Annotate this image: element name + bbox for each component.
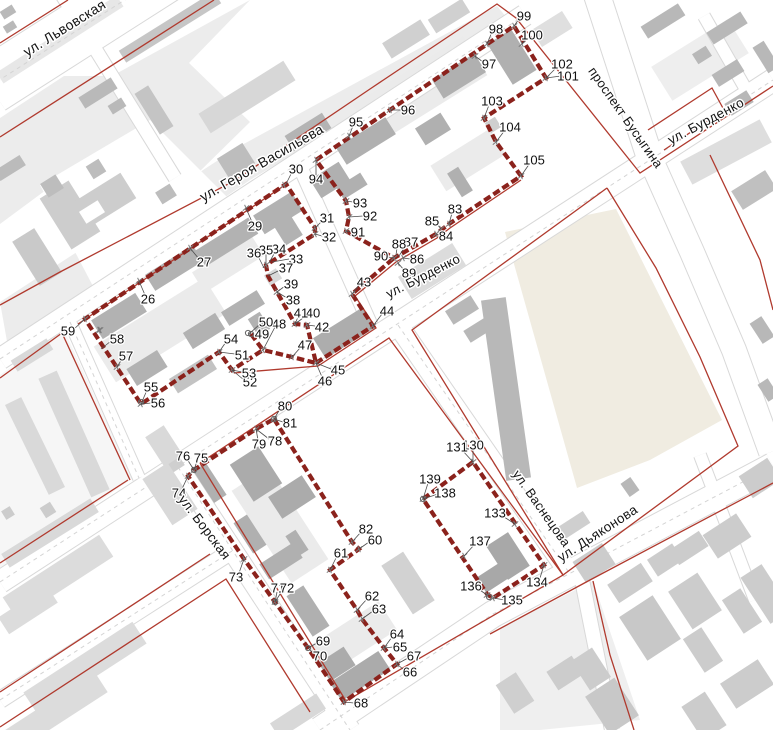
svg-text:75: 75 — [194, 451, 208, 466]
svg-text:82: 82 — [359, 522, 373, 537]
svg-text:56: 56 — [151, 396, 165, 411]
svg-text:91: 91 — [351, 225, 365, 240]
svg-text:50: 50 — [259, 315, 273, 330]
svg-text:103: 103 — [481, 94, 503, 109]
svg-text:68: 68 — [354, 696, 368, 711]
svg-text:97: 97 — [482, 57, 496, 72]
svg-text:43: 43 — [357, 275, 371, 290]
svg-text:48: 48 — [272, 317, 286, 332]
svg-text:105: 105 — [523, 153, 545, 168]
svg-text:94: 94 — [309, 172, 323, 187]
svg-text:61: 61 — [334, 546, 348, 561]
svg-text:58: 58 — [110, 332, 124, 347]
svg-text:45: 45 — [331, 363, 345, 378]
svg-text:131: 131 — [446, 440, 468, 455]
svg-text:88: 88 — [392, 237, 406, 252]
svg-text:98: 98 — [489, 22, 503, 37]
svg-text:99: 99 — [517, 9, 531, 24]
svg-text:80: 80 — [278, 399, 292, 414]
svg-text:84: 84 — [439, 229, 453, 244]
svg-text:93: 93 — [353, 196, 367, 211]
svg-text:65: 65 — [393, 640, 407, 655]
svg-text:95: 95 — [349, 115, 363, 130]
svg-text:30: 30 — [289, 162, 303, 177]
svg-text:59: 59 — [61, 324, 75, 339]
svg-text:78: 78 — [268, 434, 282, 449]
svg-text:133: 133 — [484, 506, 506, 521]
svg-text:104: 104 — [499, 120, 521, 135]
svg-text:27: 27 — [197, 255, 211, 270]
svg-text:81: 81 — [283, 416, 297, 431]
svg-text:54: 54 — [224, 332, 238, 347]
svg-text:42: 42 — [315, 320, 329, 335]
svg-text:32: 32 — [322, 230, 336, 245]
svg-text:139: 139 — [419, 472, 441, 487]
svg-text:47: 47 — [298, 338, 312, 353]
svg-text:66: 66 — [403, 665, 417, 680]
svg-text:138: 138 — [434, 486, 456, 501]
svg-text:92: 92 — [363, 209, 377, 224]
svg-text:72: 72 — [280, 581, 294, 596]
svg-text:31: 31 — [320, 211, 334, 226]
svg-text:137: 137 — [469, 534, 491, 549]
svg-text:37: 37 — [279, 261, 293, 276]
svg-text:55: 55 — [144, 380, 158, 395]
svg-text:136: 136 — [460, 579, 482, 594]
svg-text:39: 39 — [284, 277, 298, 292]
svg-text:51: 51 — [235, 348, 249, 363]
svg-text:67: 67 — [407, 649, 421, 664]
svg-text:57: 57 — [119, 349, 133, 364]
svg-text:79: 79 — [252, 437, 266, 452]
svg-text:53: 53 — [242, 366, 256, 381]
svg-text:36: 36 — [247, 246, 261, 261]
svg-text:102: 102 — [551, 57, 573, 72]
svg-text:96: 96 — [401, 103, 415, 118]
svg-text:73: 73 — [229, 570, 243, 585]
svg-text:26: 26 — [141, 292, 155, 307]
svg-text:86: 86 — [410, 252, 424, 267]
svg-text:90: 90 — [374, 249, 388, 264]
svg-text:44: 44 — [380, 304, 394, 319]
svg-text:135: 135 — [501, 593, 523, 608]
svg-text:63: 63 — [372, 602, 386, 617]
svg-text:34: 34 — [272, 242, 286, 257]
svg-text:76: 76 — [176, 449, 190, 464]
svg-text:83: 83 — [448, 202, 462, 217]
svg-text:69: 69 — [316, 634, 330, 649]
svg-text:70: 70 — [313, 649, 327, 664]
svg-text:41: 41 — [294, 306, 308, 321]
svg-text:100: 100 — [521, 28, 543, 43]
svg-text:29: 29 — [248, 219, 262, 234]
svg-text:46: 46 — [318, 374, 332, 389]
svg-text:134: 134 — [526, 575, 548, 590]
svg-text:85: 85 — [425, 214, 439, 229]
